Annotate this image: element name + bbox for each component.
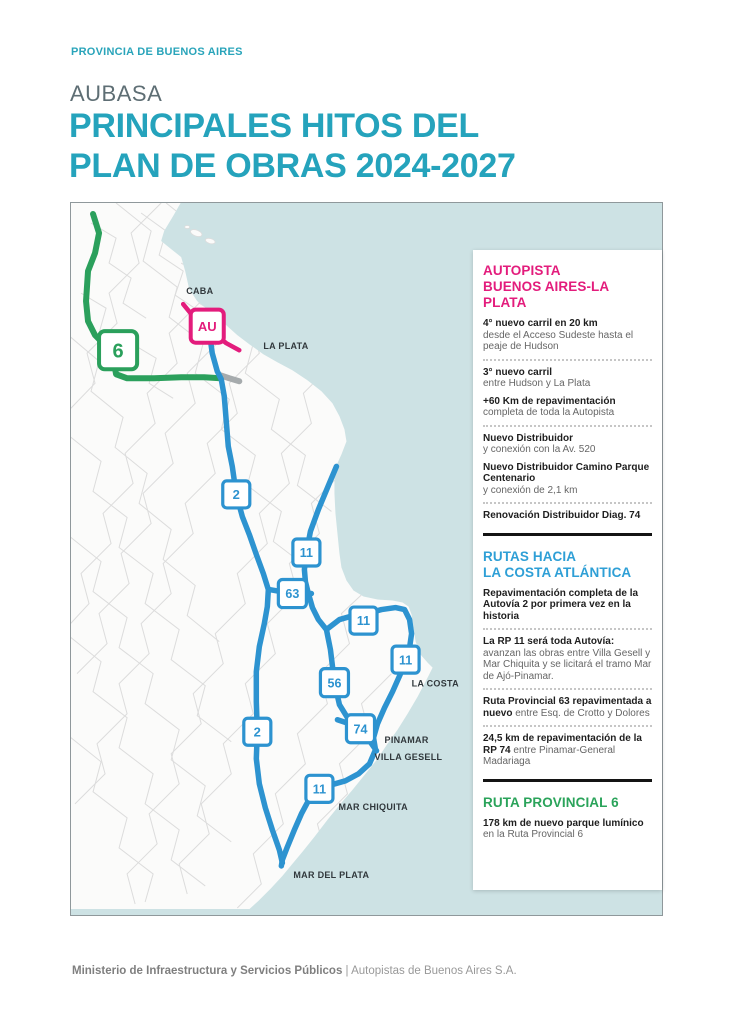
water-bottom-strip (71, 909, 662, 915)
city-label: LA PLATA (263, 341, 308, 351)
plan-item-detail: completa de toda la Autopista (483, 407, 614, 418)
route-shield-label: 6 (113, 341, 124, 363)
city-label: CABA (186, 286, 213, 296)
dotted-separator (483, 628, 652, 630)
route-shield-label: 11 (300, 546, 313, 560)
plan-item-detail: entre Esq. de Crotto y Dolores (512, 708, 649, 719)
plan-item: La RP 11 será toda Autovía:avanzan las o… (483, 636, 652, 682)
plan-item-detail: y conexión con la Av. 520 (483, 444, 596, 455)
plan-item-highlight: +60 Km de repavimentación (483, 396, 652, 408)
section-title-line: BUENOS AIRES-LA PLATA (483, 279, 652, 311)
plan-item: Repavimentación completa de la Autovía 2… (483, 588, 652, 623)
city-label: LA COSTA (412, 679, 460, 689)
page-title: PRINCIPALES HITOS DEL PLAN DE OBRAS 2024… (69, 106, 516, 186)
dotted-separator (483, 725, 652, 727)
plan-item-highlight: 3° nuevo carril (483, 367, 652, 379)
section-title-line: RUTA PROVINCIAL 6 (483, 795, 652, 811)
route-shield-label: 11 (399, 653, 412, 667)
plan-item-detail: en la Ruta Provincial 6 (483, 829, 583, 840)
plan-item: Ruta Provincial 63 repavimentada a nuevo… (483, 696, 652, 719)
aubasa-brand: AUBASA (70, 81, 162, 107)
plan-item-highlight: Nuevo Distribuidor (483, 433, 652, 445)
route-shield-label: AU (198, 319, 217, 334)
plan-item-highlight: Repavimentación completa de la Autovía 2… (483, 588, 652, 623)
plan-item-detail: y conexión de 2,1 km (483, 485, 578, 496)
section-divider (483, 779, 652, 782)
page-title-line1: PRINCIPALES HITOS DEL (69, 106, 516, 146)
plan-item: Renovación Distribuidor Diag. 74 (483, 510, 652, 522)
section-divider (483, 533, 652, 536)
route-shield-label: 56 (327, 676, 341, 690)
plan-item-highlight: La RP 11 será toda Autovía: (483, 636, 652, 648)
plan-item-detail: desde el Acceso Sudeste hasta el peaje d… (483, 330, 633, 353)
footer: Ministerio de Infraestructura y Servicio… (72, 965, 517, 977)
route-shield-label: 2 (254, 725, 261, 740)
section-title-line: AUTOPISTA (483, 263, 652, 279)
section-title-line: RUTAS HACIA (483, 549, 652, 565)
plan-item: 24,5 km de repavimentación de la RP 74 e… (483, 733, 652, 768)
section-title: AUTOPISTABUENOS AIRES-LA PLATA (483, 263, 652, 311)
section-title: RUTAS HACIALA COSTA ATLÁNTICA (483, 549, 652, 581)
section-title: RUTA PROVINCIAL 6 (483, 795, 652, 811)
route-shield-label: 11 (357, 614, 370, 628)
section-title-line: LA COSTA ATLÁNTICA (483, 565, 652, 581)
route-shield-label: 74 (354, 722, 368, 736)
footer-company: | Autopistas de Buenos Aires S.A. (346, 965, 517, 977)
city-label: MAR CHIQUITA (338, 802, 408, 812)
city-label: VILLA GESELL (375, 752, 443, 762)
plan-item-detail: avanzan las obras entre Villa Gesell y M… (483, 648, 651, 682)
city-label: PINAMAR (385, 735, 429, 745)
plan-item-highlight: 4° nuevo carril en 20 km (483, 318, 652, 330)
plan-item: 4° nuevo carril en 20 kmdesde el Acceso … (483, 318, 652, 353)
dotted-separator (483, 502, 652, 504)
plan-item: +60 Km de repavimentacióncompleta de tod… (483, 396, 652, 419)
footer-ministry: Ministerio de Infraestructura y Servicio… (72, 965, 342, 977)
plan-item: 3° nuevo carrilentre Hudson y La Plata (483, 367, 652, 390)
dotted-separator (483, 425, 652, 427)
route-shield-label: 2 (233, 487, 240, 502)
route-shield-label: 11 (313, 782, 326, 796)
dotted-separator (483, 359, 652, 361)
plan-item-highlight: Nuevo Distribuidor Camino Parque Centena… (483, 462, 652, 485)
plan-item: Nuevo Distribuidory conexión con la Av. … (483, 433, 652, 456)
province-kicker: PROVINCIA DE BUENOS AIRES (71, 46, 243, 58)
dotted-separator (483, 688, 652, 690)
route-shield-label: 63 (285, 587, 299, 601)
page-title-line2: PLAN DE OBRAS 2024-2027 (69, 146, 516, 186)
city-label: MAR DEL PLATA (293, 870, 369, 880)
plan-item: 178 km de nuevo parque lumínicoen la Rut… (483, 818, 652, 841)
info-panel: AUTOPISTABUENOS AIRES-LA PLATA4° nuevo c… (473, 250, 662, 890)
plan-item: Nuevo Distribuidor Camino Parque Centena… (483, 462, 652, 497)
plan-item-detail: entre Hudson y La Plata (483, 378, 590, 389)
plan-item-highlight: Renovación Distribuidor Diag. 74 (483, 510, 652, 522)
plan-item-highlight: 178 km de nuevo parque lumínico (483, 818, 652, 830)
